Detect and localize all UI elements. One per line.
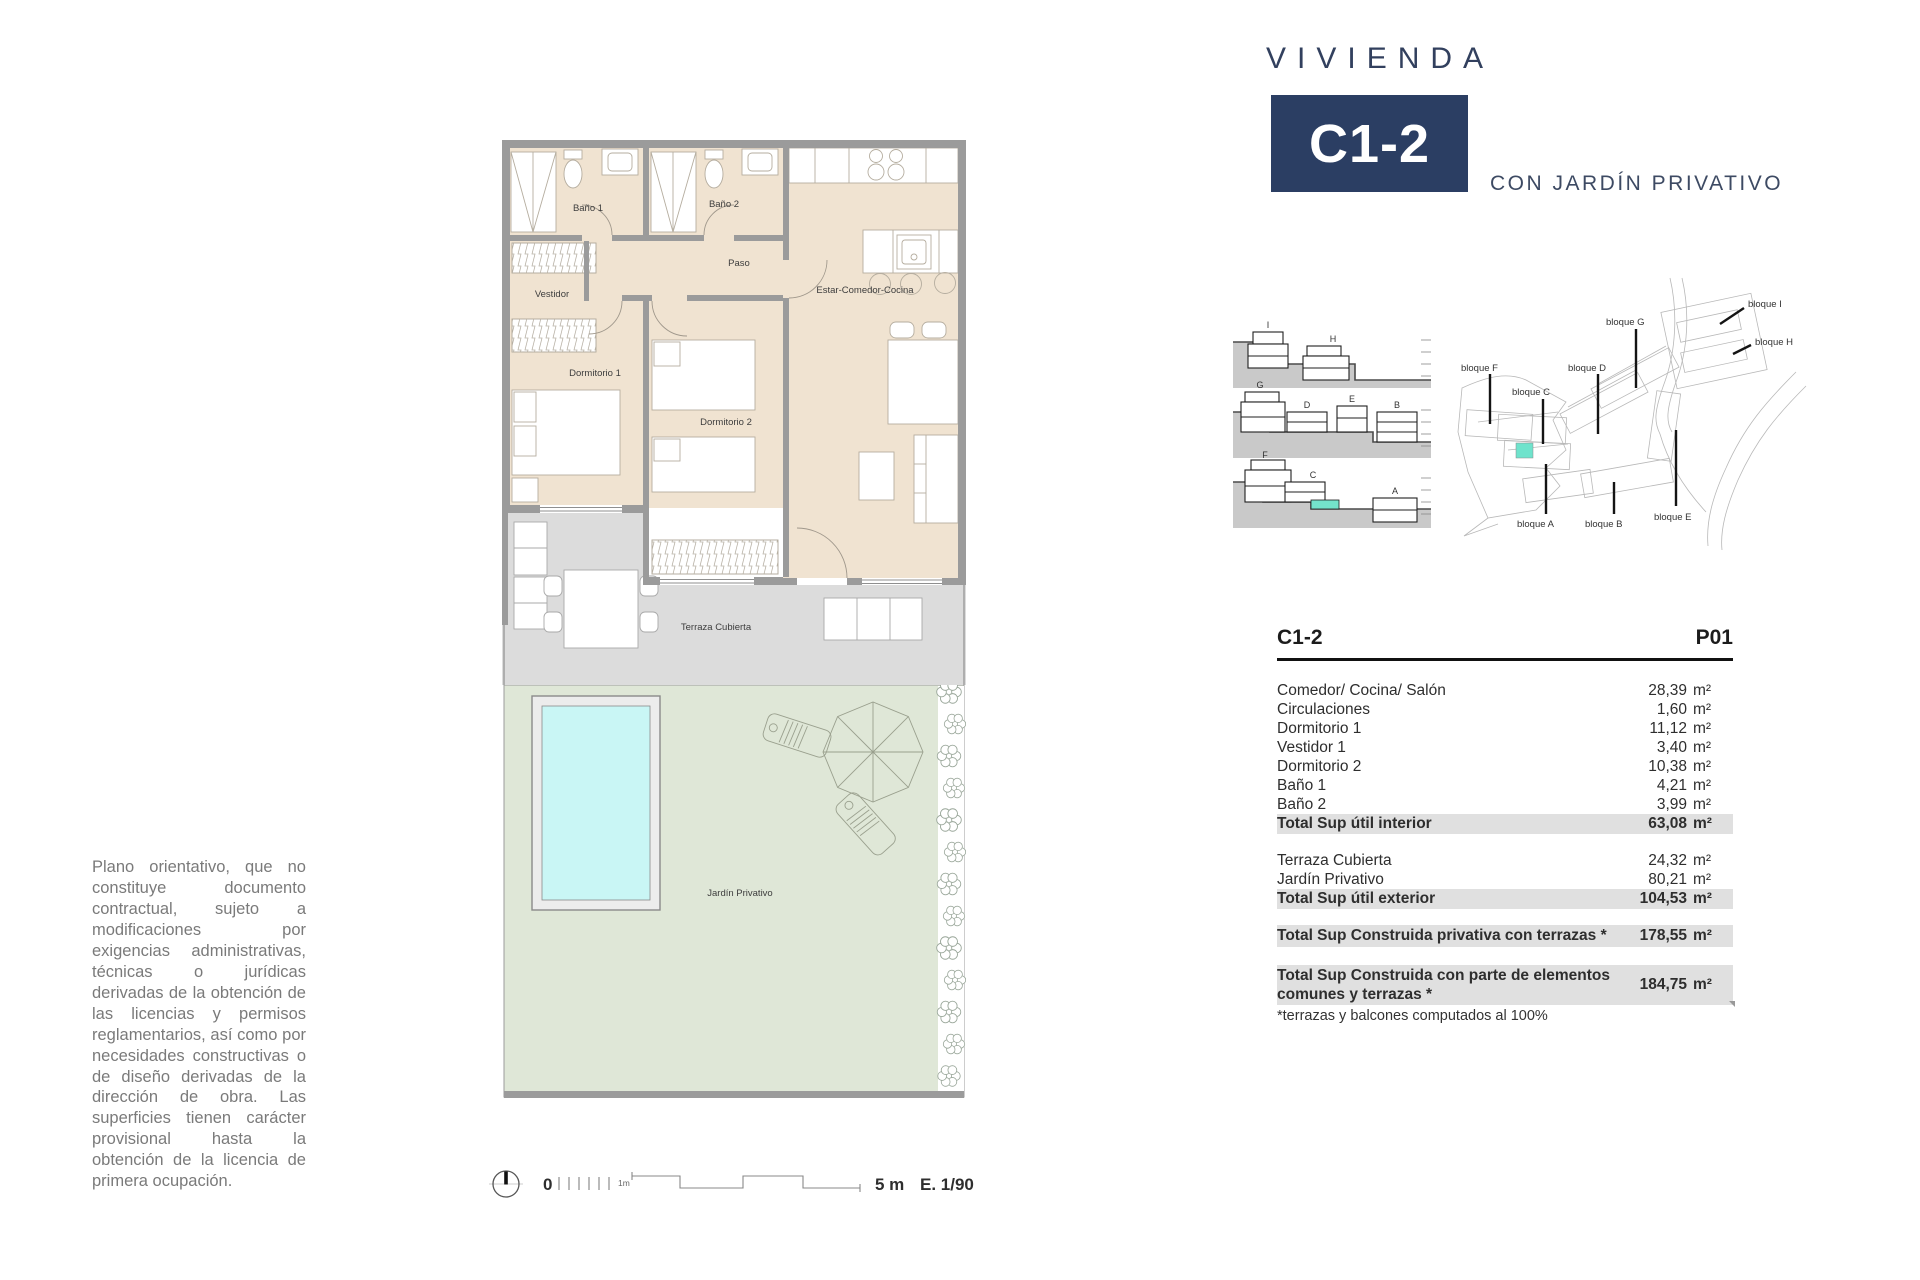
table-row: Terraza Cubierta24,32m² [1277,851,1733,870]
parasol [823,702,923,802]
section-label-f: F [1262,450,1268,460]
unit-code-box: C1-2 [1271,95,1468,192]
section-highlight-unit [1311,500,1339,509]
room-label-estar: Estar-Comedor-Cocina [816,285,914,296]
table-row-total-interior: Total Sup útil interior63,08m² [1277,814,1733,834]
floor-plan: Baño 1 Baño 2 Paso Vestidor Dormitorio 1… [502,140,966,1105]
section-label-h: H [1330,334,1337,344]
scale-bar: 0 1m 5 m E. 1/90 [487,1160,987,1212]
site-plan: bloque F bloque C bloque G bloque D bloq… [1448,272,1808,557]
section-label-e: E [1349,394,1355,404]
north-arrow-icon [489,1171,523,1197]
section-label-g: G [1256,380,1263,390]
table-header-unit: C1-2 [1277,626,1323,654]
unit-code: C1-2 [1309,113,1430,175]
scale-ratio: E. 1/90 [920,1175,974,1194]
scale-five-meters: 5 m [875,1175,904,1194]
section-label-a: A [1392,486,1398,496]
room-label-jardin: Jardín Privativo [707,888,772,899]
table-header-floor: P01 [1696,626,1733,654]
table-row-total-comunes: Total Sup Construida con parte de elemen… [1277,965,1733,1005]
site-label-a: bloque A [1517,519,1555,530]
table-row: Jardín Privativo80,21m² [1277,870,1733,889]
table-footnote: *terrazas y balcones computados al 100% [1277,1008,1733,1024]
room-label-paso: Paso [728,258,750,269]
section-label-b: B [1394,400,1400,410]
site-label-b: bloque B [1585,519,1623,530]
table-row: Vestidor 13,40m² [1277,738,1733,757]
room-label-terraza: Terraza Cubierta [681,622,752,633]
table-row: Dormitorio 210,38m² [1277,757,1733,776]
site-label-d: bloque D [1568,363,1606,374]
table-row-total-privativa: Total Sup Construida privativa con terra… [1277,925,1733,947]
room-label-dorm1: Dormitorio 1 [569,368,621,379]
site-label-i: bloque I [1748,299,1782,310]
table-row: Circulaciones1,60m² [1277,700,1733,719]
section-label-d: D [1304,400,1311,410]
room-label-dorm2: Dormitorio 2 [700,417,752,428]
scale-one-meter: 1m [618,1178,630,1188]
section-diagram: I H G D E B F C [1225,310,1440,535]
site-label-h: bloque H [1755,337,1793,348]
table-row: Dormitorio 111,12m² [1277,719,1733,738]
site-highlight-unit [1516,443,1533,458]
site-label-g: bloque G [1606,317,1645,328]
corner-mark [1729,1001,1735,1007]
table-row-total-exterior: Total Sup útil exterior104,53m² [1277,889,1733,909]
brand-title: VIVIENDA [1266,42,1476,76]
scale-zero: 0 [543,1175,552,1194]
room-label-vestidor: Vestidor [535,289,569,300]
plan-sheet: VIVIENDA C1-2 CON JARDÍN PRIVATIVO [0,0,1920,1280]
site-label-f: bloque F [1461,363,1498,374]
site-label-e: bloque E [1654,512,1692,523]
section-label-i: I [1267,320,1270,330]
site-label-c: bloque C [1512,387,1550,398]
table-header: C1-2 P01 [1277,626,1733,661]
room-label-bano1: Baño 1 [573,203,603,214]
unit-subtitle: CON JARDÍN PRIVATIVO [1490,172,1783,196]
areas-table: C1-2 P01 Comedor/ Cocina/ Salón28,39m² C… [1277,626,1733,1024]
table-row: Comedor/ Cocina/ Salón28,39m² [1277,681,1733,700]
table-row: Baño 14,21m² [1277,776,1733,795]
leader-lines [1490,308,1751,514]
disclaimer-text: Plano orientativo, que no constituye doc… [92,857,306,1192]
table-row: Baño 23,99m² [1277,795,1733,814]
room-label-bano2: Baño 2 [709,199,739,210]
section-label-c: C [1310,470,1317,480]
